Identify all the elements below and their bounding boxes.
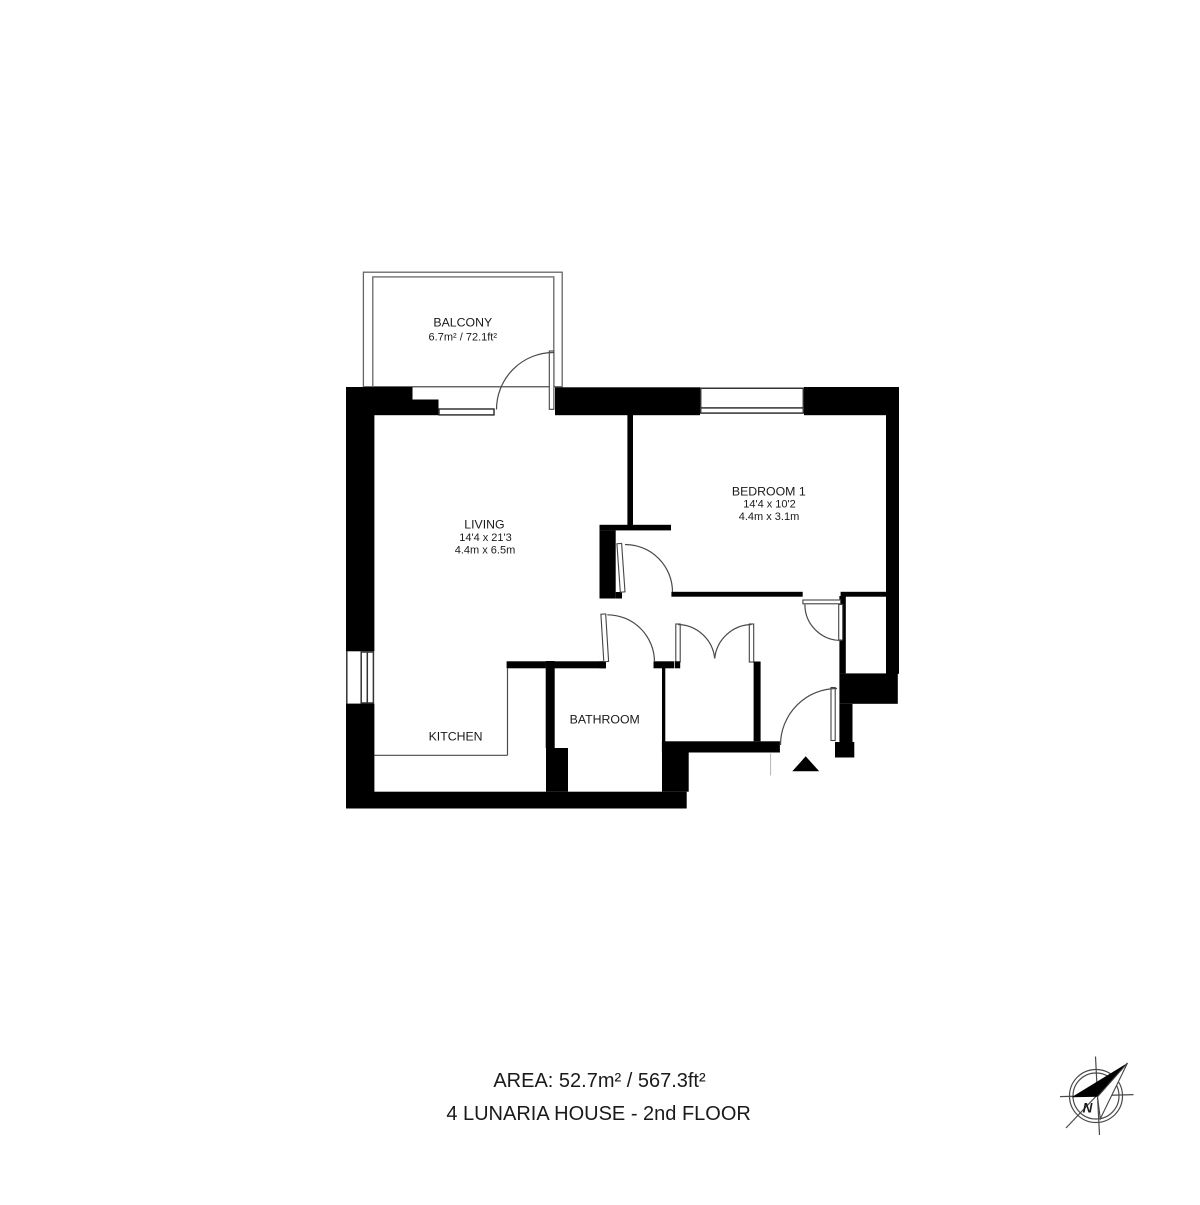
svg-text:KITCHEN: KITCHEN bbox=[429, 730, 483, 744]
svg-text:14'4 x 21'3: 14'4 x 21'3 bbox=[459, 532, 512, 544]
svg-text:4.4m x 6.5m: 4.4m x 6.5m bbox=[455, 545, 516, 557]
svg-text:6.7m² / 72.1ft²: 6.7m² / 72.1ft² bbox=[429, 332, 498, 344]
svg-text:4 LUNARIA HOUSE - 2nd FLOOR: 4 LUNARIA HOUSE - 2nd FLOOR bbox=[446, 1103, 751, 1125]
svg-text:LIVING: LIVING bbox=[464, 518, 504, 532]
svg-text:BATHROOM: BATHROOM bbox=[570, 713, 640, 727]
svg-text:AREA: 52.7m² / 567.3ft²: AREA: 52.7m² / 567.3ft² bbox=[493, 1070, 706, 1092]
svg-text:4.4m x 3.1m: 4.4m x 3.1m bbox=[739, 511, 800, 523]
svg-text:N: N bbox=[1083, 1101, 1093, 1116]
svg-text:BEDROOM 1: BEDROOM 1 bbox=[732, 485, 806, 499]
svg-text:BALCONY: BALCONY bbox=[433, 316, 492, 330]
svg-text:14'4 x 10'2: 14'4 x 10'2 bbox=[743, 499, 796, 511]
